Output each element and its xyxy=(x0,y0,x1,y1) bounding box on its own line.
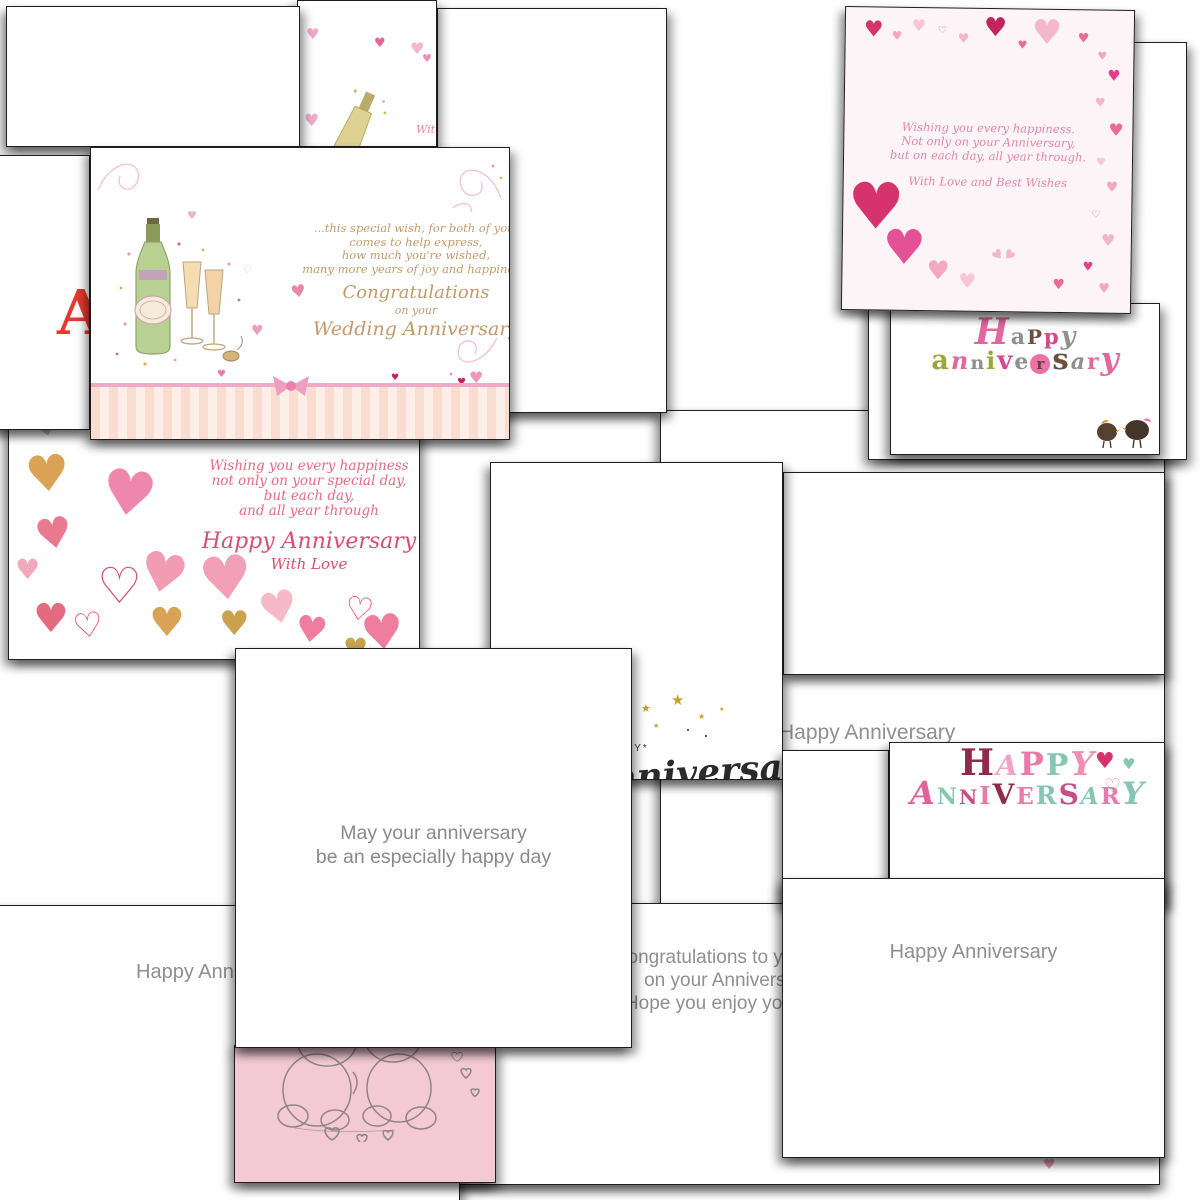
heart-icon: ♥ xyxy=(15,556,40,584)
verse-line: not only on your special day, xyxy=(179,474,420,489)
heart-icon: ♥ xyxy=(97,459,161,528)
heart-icon: ♥ xyxy=(374,37,386,50)
card-teddy-bears xyxy=(234,1045,496,1183)
swirl-decoration-icon xyxy=(93,150,153,210)
heart-icon: ♥ xyxy=(958,33,970,46)
heart-icon: ♥ xyxy=(391,374,399,383)
card-bottom-right: Happy Anniversary xyxy=(782,878,1165,1158)
wedding-script: Congratulations on your Wedding Annivers… xyxy=(301,282,510,341)
heart-icon: ♥ xyxy=(912,18,927,34)
fragment-text: Wit xyxy=(416,123,435,136)
wedding-script-line1: Congratulations xyxy=(301,282,510,304)
birds-title-anniversary: anniversary xyxy=(891,344,1159,375)
verse-line: Wishing you every happiness xyxy=(179,459,420,474)
verse-line: how much you're wished, xyxy=(301,249,510,263)
middle-line-1: May your anniversary xyxy=(236,821,631,845)
heart-icon: ♥ xyxy=(958,271,976,291)
heart-icon: ♥ xyxy=(1052,278,1065,292)
verse-line: comes to help express, xyxy=(301,236,510,250)
heart-icon: ♥ xyxy=(1122,757,1135,772)
heart-icon: ♥ xyxy=(251,324,264,338)
love-birds-icon xyxy=(1093,412,1155,450)
champagne-and-glasses-icon xyxy=(109,204,249,384)
champagne-bottle-icon xyxy=(309,78,405,147)
speck-dot xyxy=(687,729,689,731)
heart-icon: ♥ xyxy=(1078,32,1090,45)
heart-icon: ♥ xyxy=(1032,16,1063,50)
card-blank-top-left xyxy=(6,6,300,147)
heart-icon: ♥ xyxy=(187,210,197,221)
heart-icon: ♥ xyxy=(882,224,926,273)
verse-line: ...this special wish, for both of you, xyxy=(301,222,510,236)
heart-icon: ♥ xyxy=(1043,1158,1056,1172)
hearts-card-verse: Wishing you every happiness. Not only on… xyxy=(844,119,1133,191)
verse-line: but on each day, all year through. xyxy=(844,147,1132,165)
watercolor-closing: With Love xyxy=(179,557,420,572)
heart-icon: ♡ xyxy=(938,26,947,36)
heart-icon: ♥ xyxy=(1018,39,1028,50)
heart-icon: ♥ xyxy=(1101,233,1116,249)
card-wedding-anniversary: ♥ ♥ ♡ ♡ ♥ ♥ ♥ ♥ ♥ ...this special wish, … xyxy=(90,147,510,440)
heart-icon: ♡ xyxy=(243,266,252,276)
heart-icon: ♥ xyxy=(304,113,319,130)
heart-icon: ♥ xyxy=(1107,69,1121,84)
card-letter-a-fragment: A xyxy=(0,155,90,430)
wedding-script-line3: Wedding Anniversary xyxy=(301,317,510,341)
verse-line: and all year through xyxy=(179,504,420,519)
wedding-script-line2: on your xyxy=(301,304,510,317)
watercolor-verse: Wishing you every happiness not only on … xyxy=(179,459,420,572)
heart-icon: ♥ xyxy=(23,447,72,501)
heart-icon: ♥ xyxy=(864,19,884,41)
colorful-title-anniversary: ANNIVERSARY xyxy=(890,777,1164,810)
card-hearts-border: ♥ ♥ ♥ ♡ ♥ ♥ ♥ ♥ ♥ ♥ ♥ ♥ ♥ ♥ ♥ ♡ ♥ ♥ ♥ ♥ … xyxy=(841,6,1135,314)
heart-icon: ♥ xyxy=(32,510,76,558)
middle-line-2: be an especially happy day xyxy=(236,845,631,869)
heart-icon: ♥ xyxy=(1095,751,1115,773)
teddy-bears-sketch-icon xyxy=(265,1045,496,1142)
wedding-verse: ...this special wish, for both of you, c… xyxy=(301,222,510,276)
heart-icon: ♥ xyxy=(217,370,226,380)
card-collage: Happy Anniversary Congratulations to you… xyxy=(0,0,1200,1200)
letter-a-decorated: A xyxy=(57,282,90,344)
heart-icon: ♡ xyxy=(71,607,106,645)
heart-icon: ♥ xyxy=(219,607,249,641)
verse-line: many more years of joy and happiness. xyxy=(301,263,510,277)
speck-dot xyxy=(705,735,707,737)
heart-icon: ♥ xyxy=(892,30,903,42)
card-front-champagne-fragment: ♥ ♥ ♥ ♥ ♥ Wit xyxy=(297,0,437,147)
card-middle-message: May your anniversary be an especially ha… xyxy=(235,648,632,1048)
heart-icon: ♥ xyxy=(926,258,950,284)
card-blank-right-middle xyxy=(783,472,1165,675)
star-icon: ★ xyxy=(671,693,684,708)
heart-icon: ♥ xyxy=(1098,283,1110,296)
heart-icon: ♥ xyxy=(306,27,319,42)
heart-icon: ♡ xyxy=(1091,210,1100,220)
heart-icon: ♡ xyxy=(1104,777,1121,796)
ribbon-bow-icon xyxy=(269,373,313,399)
heart-icon: ♥ xyxy=(984,15,1008,41)
star-icon: ★ xyxy=(653,723,659,730)
heart-icon: ♥ xyxy=(293,611,330,651)
heart-icon: ♥ xyxy=(149,603,185,643)
bottom-right-message: Happy Anniversary xyxy=(783,941,1164,964)
verse-line: but each day, xyxy=(179,489,420,504)
card-birds-anniversary: HaPpy anniversary xyxy=(890,303,1160,455)
watercolor-script: Happy Anniversary xyxy=(179,527,420,557)
heart-icon: ♥ xyxy=(422,53,432,64)
heart-icon: ♥ xyxy=(1097,51,1107,62)
heart-icon: ♥ xyxy=(1082,260,1093,272)
middle-message: May your anniversary be an especially ha… xyxy=(236,821,631,869)
swirl-decoration-icon xyxy=(443,154,507,218)
star-icon: ★ xyxy=(719,707,724,713)
heart-icon: ♥ xyxy=(1095,96,1106,108)
star-icon: ★ xyxy=(698,713,705,721)
heart-icon: ♥ xyxy=(33,599,69,639)
star-icon: ★ xyxy=(641,703,651,714)
